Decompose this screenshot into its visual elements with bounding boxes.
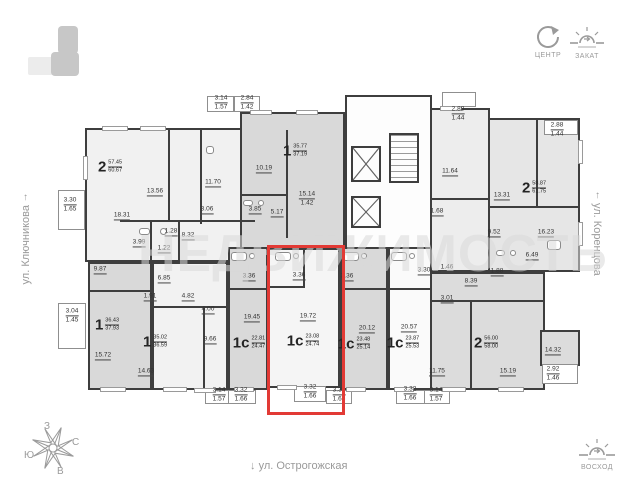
room-dimension: 3.041.45 — [66, 307, 79, 324]
room-dimension: 3.01 — [441, 294, 454, 303]
compass-rose-icon — [27, 422, 79, 474]
window — [346, 387, 366, 392]
apartment-area-living: 23.87 — [405, 336, 419, 344]
apartment-area-total: 25.14 — [356, 345, 370, 352]
window — [578, 222, 583, 246]
room-dimension: 3.36 — [243, 272, 256, 281]
room-dimension: 20.12 — [359, 324, 375, 333]
apartment-area-total: 58.00 — [484, 344, 498, 351]
apartment-area-total: 24.47 — [251, 344, 265, 351]
room-dimension: 3.06 — [201, 205, 214, 214]
staircase — [389, 133, 419, 183]
window — [578, 140, 583, 164]
wall — [168, 128, 170, 222]
room-dimension: 15.141.42 — [299, 190, 315, 207]
room-dimension: 5.17 — [271, 208, 284, 217]
wall — [88, 290, 152, 292]
apartment-region-1s-2348[interactable] — [340, 247, 388, 390]
wall — [203, 306, 205, 390]
apartment-label: 1с23.8725.53 — [387, 336, 419, 351]
wall — [470, 302, 472, 390]
window — [102, 126, 128, 131]
room-dimension: 3.141.57 — [215, 94, 228, 111]
elevator-shaft — [351, 146, 381, 182]
compass-center-icon — [533, 22, 563, 52]
bath-fixture-icon — [343, 252, 359, 261]
room-dimension: 6.49 — [526, 251, 539, 260]
compass-rose-north: С — [72, 437, 79, 448]
room-dimension: 13.31 — [494, 191, 510, 200]
bath-fixture-icon — [139, 228, 150, 235]
bath-fixture-icon — [547, 240, 561, 250]
room-dimension: 3.301.65 — [64, 196, 77, 213]
room-dimension: 19.45 — [244, 313, 260, 322]
apartment-rooms-count: 2 — [474, 336, 482, 351]
sunrise-label: ВОСХОД — [581, 464, 613, 471]
elevator-shaft — [351, 196, 381, 228]
apartment-label: 258.8761.75 — [522, 181, 546, 196]
wall — [388, 288, 432, 290]
window — [140, 126, 166, 131]
bath-fixture-icon — [391, 252, 407, 261]
room-dimension: 13.56 — [147, 187, 163, 196]
apartment-area-total: 37.93 — [105, 326, 119, 333]
room-dimension: 1.28 — [165, 227, 178, 236]
room-dimension: 2.921.46 — [547, 365, 560, 382]
apartment-rooms-count: 2 — [522, 181, 530, 196]
apartment-rooms-count: 1с — [387, 336, 404, 351]
apartment-area-living: 35.02 — [153, 335, 167, 343]
apartment-area-living: 36.43 — [105, 318, 119, 326]
room-dimension: 11.64 — [442, 167, 458, 176]
apartment-areas: 57.4560.67 — [108, 160, 122, 175]
apartment-label: 136.4337.93 — [95, 318, 119, 333]
apartment-area-living: 35.77 — [293, 144, 307, 152]
apartment-area-total: 36.59 — [153, 343, 167, 350]
room-dimension: 14.63 — [138, 367, 154, 376]
sunset-icon — [568, 24, 606, 52]
compass-center-label: ЦЕНТР — [535, 52, 561, 59]
apartment-rooms-count: 1с — [233, 336, 250, 351]
sunrise-icon — [577, 436, 617, 464]
room-dimension: 9.87 — [94, 265, 107, 274]
bath-fixture-icon — [249, 253, 255, 259]
apartment-area-living: 22.81 — [251, 336, 265, 344]
room-dimension: 1.46 — [441, 263, 454, 272]
room-dimension: 8.39 — [465, 277, 478, 286]
room-dimension: 3.141.57 — [430, 386, 443, 403]
window — [163, 387, 187, 392]
window — [100, 387, 126, 392]
apartment-area-total: 37.19 — [293, 152, 307, 159]
apartment-areas: 23.4825.14 — [356, 337, 370, 352]
apartment-area-living: 57.45 — [108, 160, 122, 168]
apartment-areas: 22.8124.47 — [251, 336, 265, 351]
building-position-minimap — [24, 22, 84, 80]
apartment-region-2k-5600[interactable] — [430, 272, 545, 390]
apartment-area-total: 25.53 — [405, 344, 419, 351]
bath-fixture-icon — [361, 253, 367, 259]
apartment-label: 257.4560.67 — [98, 160, 122, 175]
apartment-areas: 35.0236.59 — [153, 335, 167, 350]
room-dimension: 2.841.42 — [241, 94, 254, 111]
room-dimension: 4.82 — [182, 292, 195, 301]
room-dimension: 9.66 — [204, 335, 217, 344]
apartment-areas: 36.4337.93 — [105, 318, 119, 333]
floorplan-page: ЦЕНТР ЗАКАТ ВОСХОД — [0, 0, 626, 500]
window — [442, 387, 466, 392]
room-dimension: 16.23 — [538, 228, 554, 237]
wall — [178, 222, 180, 262]
bath-fixture-icon — [409, 253, 415, 259]
room-dimension: 2.881.44 — [551, 121, 564, 138]
wall — [228, 288, 268, 290]
room-dimension: 1.88 — [491, 267, 504, 276]
wall — [120, 220, 255, 222]
window — [296, 110, 318, 115]
room-dimension: 4.00 — [202, 305, 215, 314]
apartment-rooms-count: 1 — [95, 318, 103, 333]
apartment-area-total: 61.75 — [532, 189, 546, 196]
street-right-label: ул. Коренцова — [591, 203, 603, 276]
room-dimension: 8.32 — [182, 231, 195, 240]
apartment-rooms-count: 1 — [143, 335, 151, 350]
street-bottom-label: ул. Острогожская — [259, 460, 348, 472]
selected-apartment-outline[interactable] — [267, 245, 345, 415]
wall — [490, 206, 578, 208]
room-dimension: 1.91 — [144, 292, 157, 301]
apartment-region-2k-5745[interactable] — [85, 128, 255, 262]
compass-rose-west: З — [44, 421, 50, 432]
apartment-areas: 58.8761.75 — [532, 181, 546, 196]
apartment-area-living: 23.48 — [356, 337, 370, 345]
room-dimension: 20.57 — [401, 323, 417, 332]
wall — [150, 222, 152, 262]
room-dimension: 1.68 — [431, 207, 444, 216]
room-dimension: 3.85 — [249, 205, 262, 214]
apartment-region-2k-5887[interactable] — [430, 108, 490, 272]
compass-rose-south: Ю — [24, 450, 34, 461]
sunset-label: ЗАКАТ — [575, 53, 599, 60]
apartment-area-total: 60.67 — [108, 168, 122, 175]
apartment-areas: 56.0058.00 — [484, 336, 498, 351]
minimap-current-section — [58, 26, 78, 54]
room-dimension: 1.22 — [158, 244, 171, 253]
apartment-region-1k-3577[interactable] — [240, 112, 345, 262]
street-left-arrow: ↑ — [23, 192, 28, 203]
room-dimension: 10.19 — [256, 164, 272, 173]
bath-fixture-icon — [510, 250, 516, 256]
compass-rose-east: В — [57, 466, 64, 477]
room-dimension: 3.141.57 — [213, 386, 226, 403]
minimap-current-section — [51, 52, 79, 76]
apartment-area-living: 56.00 — [484, 336, 498, 344]
room-dimension: 2.881.44 — [452, 105, 465, 122]
room-dimension: 11.75 — [429, 367, 445, 376]
apartment-label: 1с22.8124.47 — [233, 336, 265, 351]
apartment-rooms-count: 1 — [283, 144, 291, 159]
street-left-label: ул. Ключникова — [20, 205, 32, 284]
apartment-label: 256.0058.00 — [474, 336, 498, 351]
wall — [240, 194, 286, 196]
apartment-rooms-count: 2 — [98, 160, 106, 175]
apartment-areas: 23.8725.53 — [405, 336, 419, 351]
window — [83, 156, 88, 180]
room-dimension: 15.72 — [95, 351, 111, 360]
bath-fixture-icon — [496, 250, 505, 256]
wall — [430, 198, 490, 200]
room-dimension: 14.32 — [545, 346, 561, 355]
wall — [340, 288, 388, 290]
apartment-areas: 35.7737.19 — [293, 144, 307, 159]
room-dimension: 3.321.66 — [404, 385, 417, 402]
room-dimension: 9.52 — [488, 228, 501, 237]
room-dimension: 3.30 — [418, 266, 431, 275]
bath-fixture-icon — [206, 146, 214, 154]
window — [498, 387, 524, 392]
street-right-arrow: ↑ — [595, 190, 600, 201]
bath-fixture-icon — [231, 252, 247, 261]
room-dimension: 3.99 — [133, 238, 146, 247]
apartment-area-living: 58.87 — [532, 181, 546, 189]
room-dimension: 18.31 — [114, 211, 130, 220]
street-bottom: ↓ ул. Острогожская — [250, 460, 347, 472]
room-dimension: 3.321.66 — [235, 386, 248, 403]
apartment-label: 135.0236.59 — [143, 335, 167, 350]
room-dimension: 15.19 — [500, 367, 516, 376]
street-bottom-arrow: ↓ — [250, 460, 256, 472]
room-dimension: 6.85 — [158, 274, 171, 283]
room-dimension: 11.70 — [205, 178, 221, 187]
wall — [152, 306, 228, 308]
apartment-label: 135.7737.19 — [283, 144, 307, 159]
